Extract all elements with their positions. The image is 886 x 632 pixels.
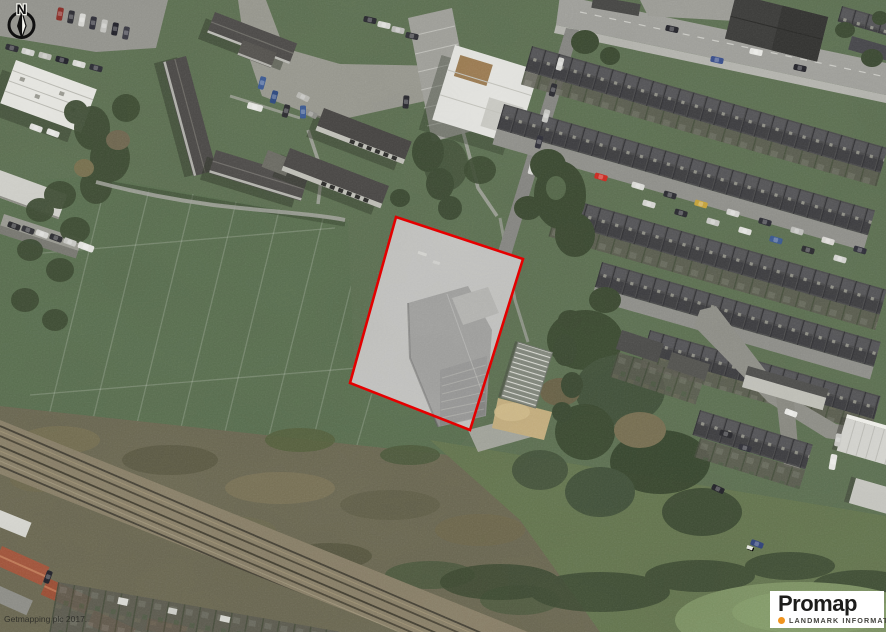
north-label: N [16, 1, 26, 17]
landmark-tagline: LANDMARK INFORMATION [789, 616, 886, 625]
landmark-dot-icon [778, 617, 785, 624]
aerial-photo-viewport: N Getmapping plc 2017. Promap LANDMARK I… [0, 0, 886, 632]
promap-wordmark: Promap [778, 593, 878, 615]
promap-logo: Promap LANDMARK INFORMATION [770, 591, 884, 628]
aerial-photo: N Getmapping plc 2017. [0, 0, 886, 632]
photo-grain-overlay [0, 0, 886, 632]
map-credit: Getmapping plc 2017. [4, 614, 87, 624]
